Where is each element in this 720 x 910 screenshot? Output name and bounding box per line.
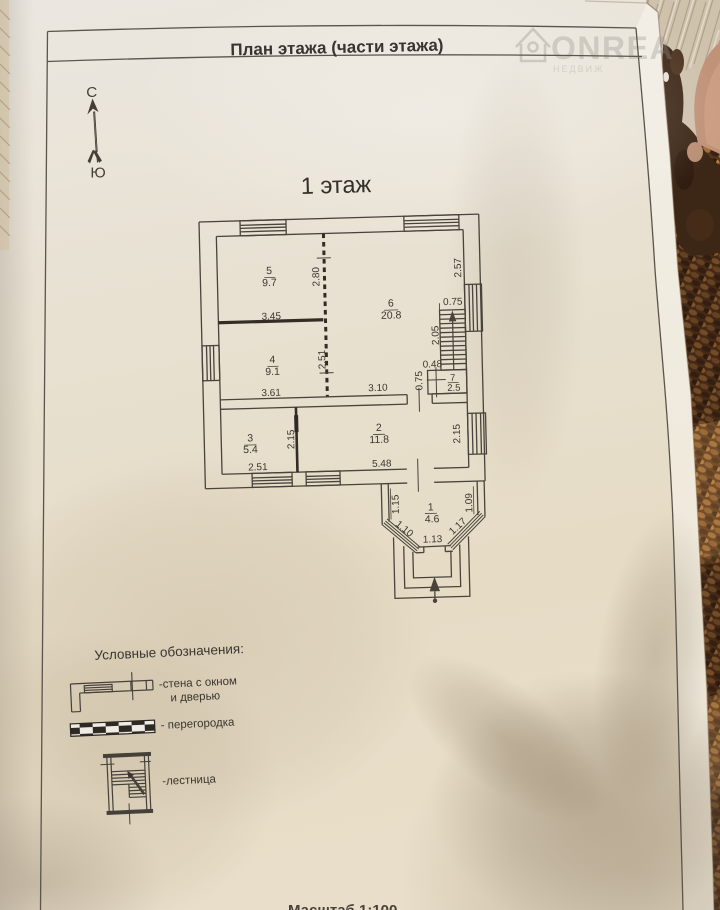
- svg-text:1.15: 1.15: [390, 494, 401, 514]
- svg-text:и дверью: и дверью: [170, 690, 221, 704]
- svg-text:5.4: 5.4: [243, 445, 258, 456]
- svg-text:11.8: 11.8: [369, 435, 389, 447]
- svg-text:Ю: Ю: [90, 164, 105, 181]
- svg-text:3.45: 3.45: [261, 311, 281, 323]
- svg-text:3.61: 3.61: [261, 388, 281, 400]
- svg-text:5.48: 5.48: [372, 459, 392, 471]
- svg-text:20.8: 20.8: [381, 310, 402, 322]
- svg-text:Масштаб 1:100: Масштаб 1:100: [288, 902, 397, 910]
- svg-text:3.10: 3.10: [368, 383, 388, 395]
- svg-text:2.15: 2.15: [452, 423, 463, 443]
- svg-text:4: 4: [269, 355, 275, 366]
- svg-text:С: С: [86, 84, 97, 101]
- svg-text:5: 5: [266, 266, 272, 277]
- svg-text:2.80: 2.80: [311, 266, 322, 286]
- svg-text:2.5: 2.5: [447, 383, 460, 394]
- svg-text:9.1: 9.1: [265, 367, 280, 378]
- svg-text:2: 2: [376, 423, 382, 434]
- svg-text:ONREA: ONREA: [551, 30, 674, 66]
- svg-text:1 этаж: 1 этаж: [300, 171, 371, 199]
- svg-text:2.51: 2.51: [248, 462, 268, 474]
- svg-text:1: 1: [428, 502, 434, 513]
- svg-text:0.48: 0.48: [423, 359, 443, 371]
- svg-text:2.05: 2.05: [430, 325, 441, 345]
- svg-text:-лестница: -лестница: [162, 773, 217, 787]
- svg-text:3: 3: [247, 433, 253, 444]
- svg-text:4.6: 4.6: [425, 514, 440, 525]
- svg-text:1.09: 1.09: [464, 493, 475, 513]
- svg-text:0.75: 0.75: [414, 370, 425, 390]
- svg-text:1.13: 1.13: [423, 534, 443, 546]
- svg-text:2.51: 2.51: [317, 349, 328, 369]
- svg-text:НЕДВИЖ: НЕДВИЖ: [553, 64, 604, 74]
- svg-text:6: 6: [388, 299, 394, 310]
- svg-text:2.57: 2.57: [453, 257, 464, 277]
- svg-text:9.7: 9.7: [262, 278, 277, 289]
- svg-text:2.15: 2.15: [286, 429, 297, 449]
- svg-text:0.75: 0.75: [443, 297, 463, 309]
